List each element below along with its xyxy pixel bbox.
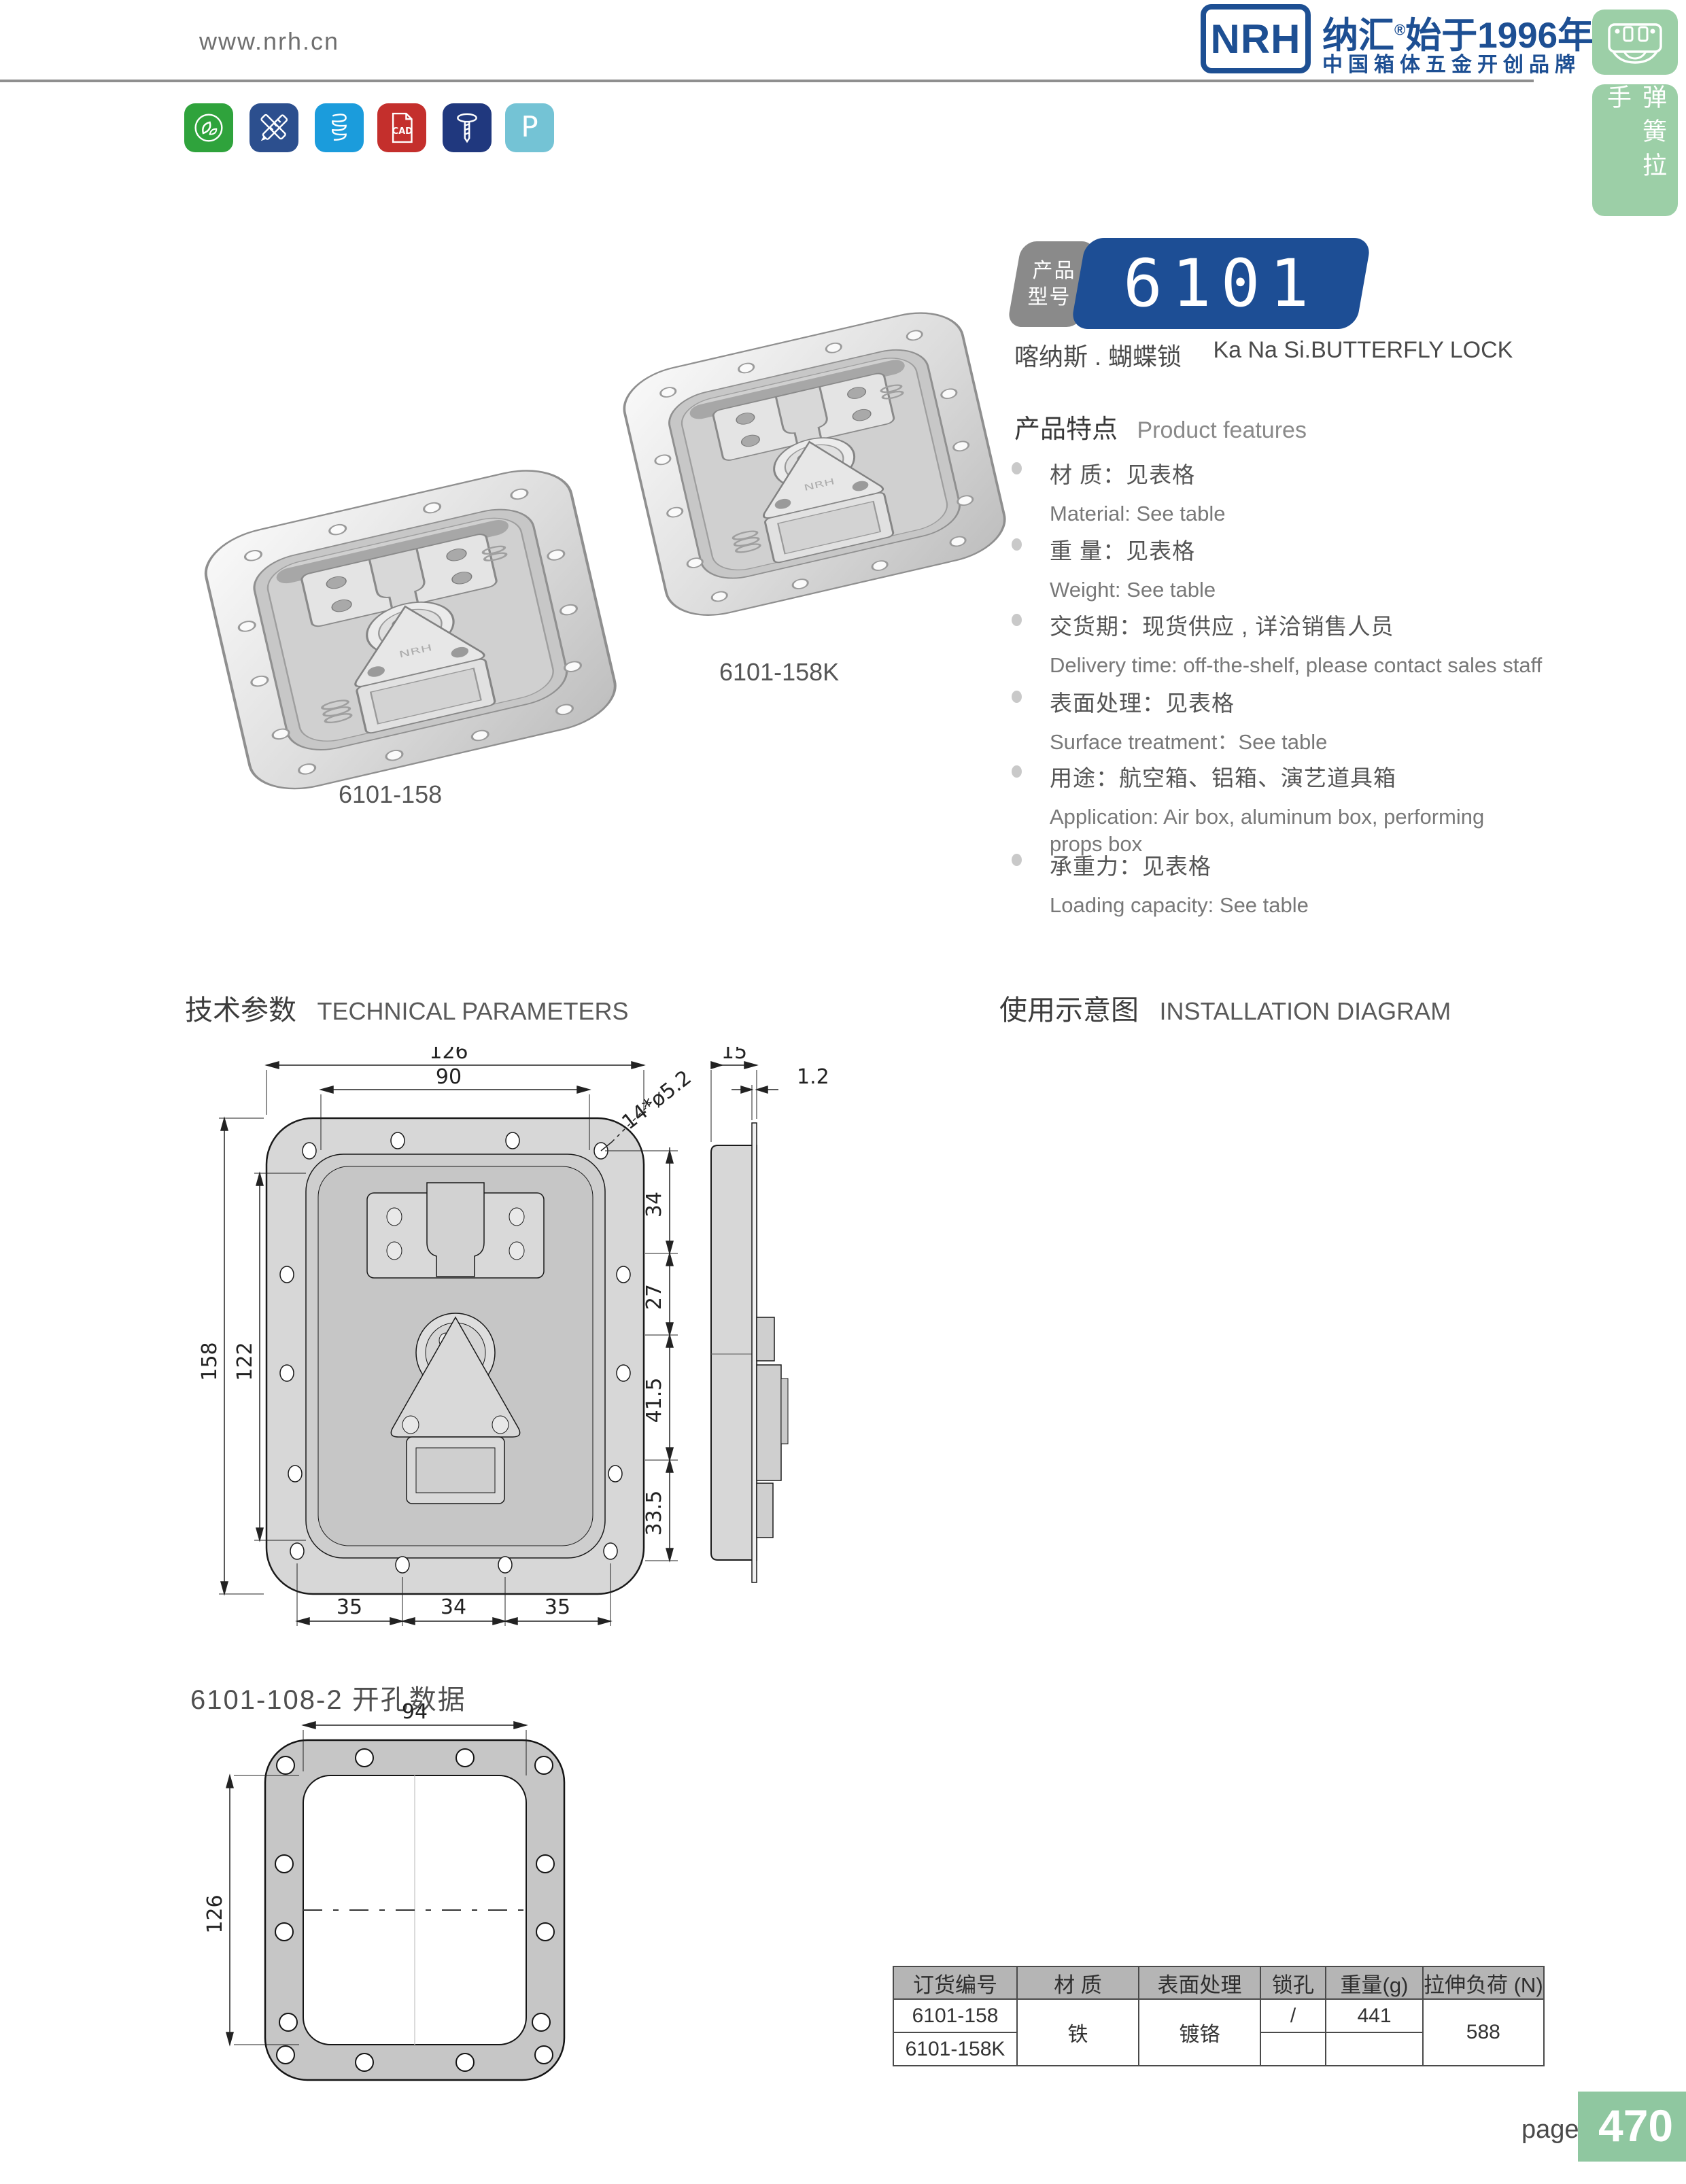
dim-right-4: 33.5 bbox=[642, 1491, 666, 1536]
cad-file-icon: CAD bbox=[377, 103, 426, 152]
dim-width-inner: 90 bbox=[436, 1065, 462, 1089]
dim-side-width: 15 bbox=[721, 1047, 747, 1064]
cell-tensile-load: 588 bbox=[1423, 1999, 1544, 2066]
cell-weight: 441 bbox=[1326, 1999, 1423, 2032]
feature-text-cn: 承重力：见表格 bbox=[1050, 848, 1558, 881]
cell-weight bbox=[1326, 2032, 1423, 2066]
letter-p-icon: P bbox=[505, 103, 554, 152]
install-title-en: INSTALLATION DIAGRAM bbox=[1159, 997, 1451, 1025]
registered-mark: ® bbox=[1394, 21, 1405, 38]
feature-text-en: Material: See table bbox=[1050, 500, 1558, 527]
dim-right-2: 27 bbox=[642, 1284, 666, 1310]
cad-icon-label: CAD bbox=[392, 126, 413, 137]
cell-surface: 镀铬 bbox=[1139, 1999, 1260, 2066]
col-surface: 表面处理 bbox=[1139, 1966, 1260, 1999]
features-title: 产品特点 Product features bbox=[1014, 408, 1307, 445]
tech-section-title: 技术参数 TECHNICAL PARAMETERS bbox=[185, 987, 629, 1028]
photo-label: 6101-158 bbox=[339, 780, 442, 809]
feature-text-en: Weight: See table bbox=[1050, 576, 1558, 604]
table-row: 6101-158 铁 镀铬 / 441 588 bbox=[893, 1999, 1544, 2032]
table-header-row: 订货编号 材 质 表面处理 锁孔 重量(g) 拉伸负荷 (N) bbox=[893, 1966, 1544, 1999]
sidebar-latch-tab[interactable] bbox=[1592, 10, 1678, 75]
col-weight: 重量(g) bbox=[1326, 1966, 1423, 1999]
feature-item: 重 量：见表格 Weight: See table bbox=[1014, 533, 1558, 604]
cutout-drawing: 94 126 bbox=[177, 1699, 653, 2107]
dim-right-3: 41.5 bbox=[642, 1378, 666, 1423]
p-icon-label: P bbox=[521, 110, 538, 143]
bullet-dot-icon bbox=[1012, 854, 1022, 866]
page-number: 470 bbox=[1598, 2092, 1686, 2160]
design-tools-icon bbox=[250, 103, 298, 152]
install-section-title: 使用示意图 INSTALLATION DIAGRAM bbox=[999, 987, 1451, 1028]
bullet-dot-icon bbox=[1012, 765, 1022, 778]
nrh-logo: NRH bbox=[1201, 4, 1311, 73]
col-tensile-load: 拉伸负荷 (N) bbox=[1423, 1966, 1544, 1999]
feature-item: 交货期：现货供应 , 详洽销售人员 Delivery time: off-the… bbox=[1014, 608, 1558, 679]
feature-item: 用途：航空箱、铝箱、演艺道具箱 Application: Air box, al… bbox=[1014, 760, 1558, 858]
screw-icon bbox=[443, 103, 492, 152]
feature-text-cn: 表面处理：见表格 bbox=[1050, 685, 1558, 718]
col-order-code: 订货编号 bbox=[893, 1966, 1017, 1999]
dim-cutout-width: 94 bbox=[402, 1700, 428, 1724]
product-name-cn: 喀纳斯 . 蝴蝶锁 bbox=[1014, 343, 1182, 370]
latch-icon bbox=[1604, 18, 1666, 67]
features-title-en: Product features bbox=[1137, 417, 1306, 443]
model-banner: 6101 bbox=[1070, 238, 1372, 329]
cell-code: 6101-158 bbox=[893, 1999, 1017, 2032]
spec-table: 订货编号 材 质 表面处理 锁孔 重量(g) 拉伸负荷 (N) 6101-158… bbox=[893, 1966, 1545, 2066]
brand-subtitle: 中国箱体五金开创品牌 bbox=[1322, 48, 1581, 77]
feature-text-cn: 重 量：见表格 bbox=[1050, 533, 1558, 566]
page-label: page bbox=[1521, 2115, 1579, 2145]
product-photos: NRH bbox=[163, 285, 1013, 822]
sidebar-category-label: 弹簧拉手 bbox=[1600, 84, 1670, 216]
catalog-page: www.nrh.cn NRH 纳汇®始于1996年 中国箱体五金开创品牌 弹簧拉… bbox=[0, 0, 1686, 2184]
cell-material: 铁 bbox=[1017, 1999, 1139, 2066]
dim-bottom-2: 34 bbox=[441, 1595, 466, 1619]
badge-line-2: 型号 bbox=[1028, 284, 1071, 311]
bullet-dot-icon bbox=[1012, 691, 1022, 703]
product-name: 喀纳斯 . 蝴蝶锁 Ka Na Si.BUTTERFLY LOCK bbox=[1014, 337, 1513, 372]
sidebar-category-tab[interactable]: 弹簧拉手 bbox=[1592, 84, 1678, 216]
dim-bottom-1: 35 bbox=[337, 1595, 362, 1619]
cell-lock-hole: / bbox=[1260, 1999, 1326, 2032]
dim-bottom-3: 35 bbox=[545, 1595, 570, 1619]
dim-width-outer: 126 bbox=[429, 1047, 468, 1064]
product-name-en: Ka Na Si.BUTTERFLY LOCK bbox=[1213, 337, 1513, 363]
features-title-cn: 产品特点 bbox=[1014, 415, 1118, 444]
feature-text-cn: 材 质：见表格 bbox=[1050, 457, 1558, 489]
feature-text-en: Loading capacity: See table bbox=[1050, 892, 1558, 919]
dim-cutout-height: 126 bbox=[203, 1894, 227, 1933]
dim-height-inner: 122 bbox=[233, 1342, 257, 1381]
bullet-dot-icon bbox=[1012, 538, 1022, 551]
feature-item: 承重力：见表格 Loading capacity: See table bbox=[1014, 848, 1558, 919]
col-material: 材 质 bbox=[1017, 1966, 1139, 1999]
front-view-drawing: 126 90 14*ø5.2 158 122 34 27 41.5 33.5 3… bbox=[177, 1047, 857, 1672]
install-title-cn: 使用示意图 bbox=[999, 994, 1139, 1026]
nrh-logo-text: NRH bbox=[1211, 16, 1301, 63]
tech-title-cn: 技术参数 bbox=[185, 994, 296, 1026]
feature-text-en: Delivery time: off-the-shelf, please con… bbox=[1050, 652, 1558, 679]
feature-item: 表面处理：见表格 Surface treatment：See table bbox=[1014, 685, 1558, 756]
cell-lock-hole bbox=[1260, 2032, 1326, 2066]
dim-right-1: 34 bbox=[642, 1192, 666, 1217]
dim-side-thickness: 1.2 bbox=[797, 1065, 829, 1089]
cell-code: 6101-158K bbox=[893, 2032, 1017, 2066]
eco-leaf-icon bbox=[184, 103, 233, 152]
dim-height-outer: 158 bbox=[198, 1342, 222, 1381]
photo-label: 6101-158K bbox=[719, 658, 839, 687]
product-photo-6101-158 bbox=[199, 460, 623, 799]
col-lock-hole: 锁孔 bbox=[1260, 1966, 1326, 1999]
header-divider bbox=[0, 80, 1534, 82]
model-number: 6101 bbox=[1123, 245, 1318, 322]
feature-text-en: Surface treatment：See table bbox=[1050, 729, 1558, 756]
product-photo-6101-158K bbox=[617, 302, 1012, 625]
feature-item: 材 质：见表格 Material: See table bbox=[1014, 457, 1558, 527]
feature-text-cn: 交货期：现货供应 , 详洽销售人员 bbox=[1050, 608, 1558, 641]
spring-coil-icon bbox=[315, 103, 364, 152]
bullet-dot-icon bbox=[1012, 462, 1022, 474]
badge-line-1: 产品 bbox=[1032, 258, 1076, 284]
website-link[interactable]: www.nrh.cn bbox=[199, 27, 339, 56]
bullet-dot-icon bbox=[1012, 614, 1022, 626]
tech-title-en: TECHNICAL PARAMETERS bbox=[317, 997, 628, 1025]
page-number-badge: 470 bbox=[1578, 2092, 1686, 2162]
feature-text-cn: 用途：航空箱、铝箱、演艺道具箱 bbox=[1050, 760, 1558, 793]
dim-hole-callout: 14*ø5.2 bbox=[617, 1066, 696, 1134]
